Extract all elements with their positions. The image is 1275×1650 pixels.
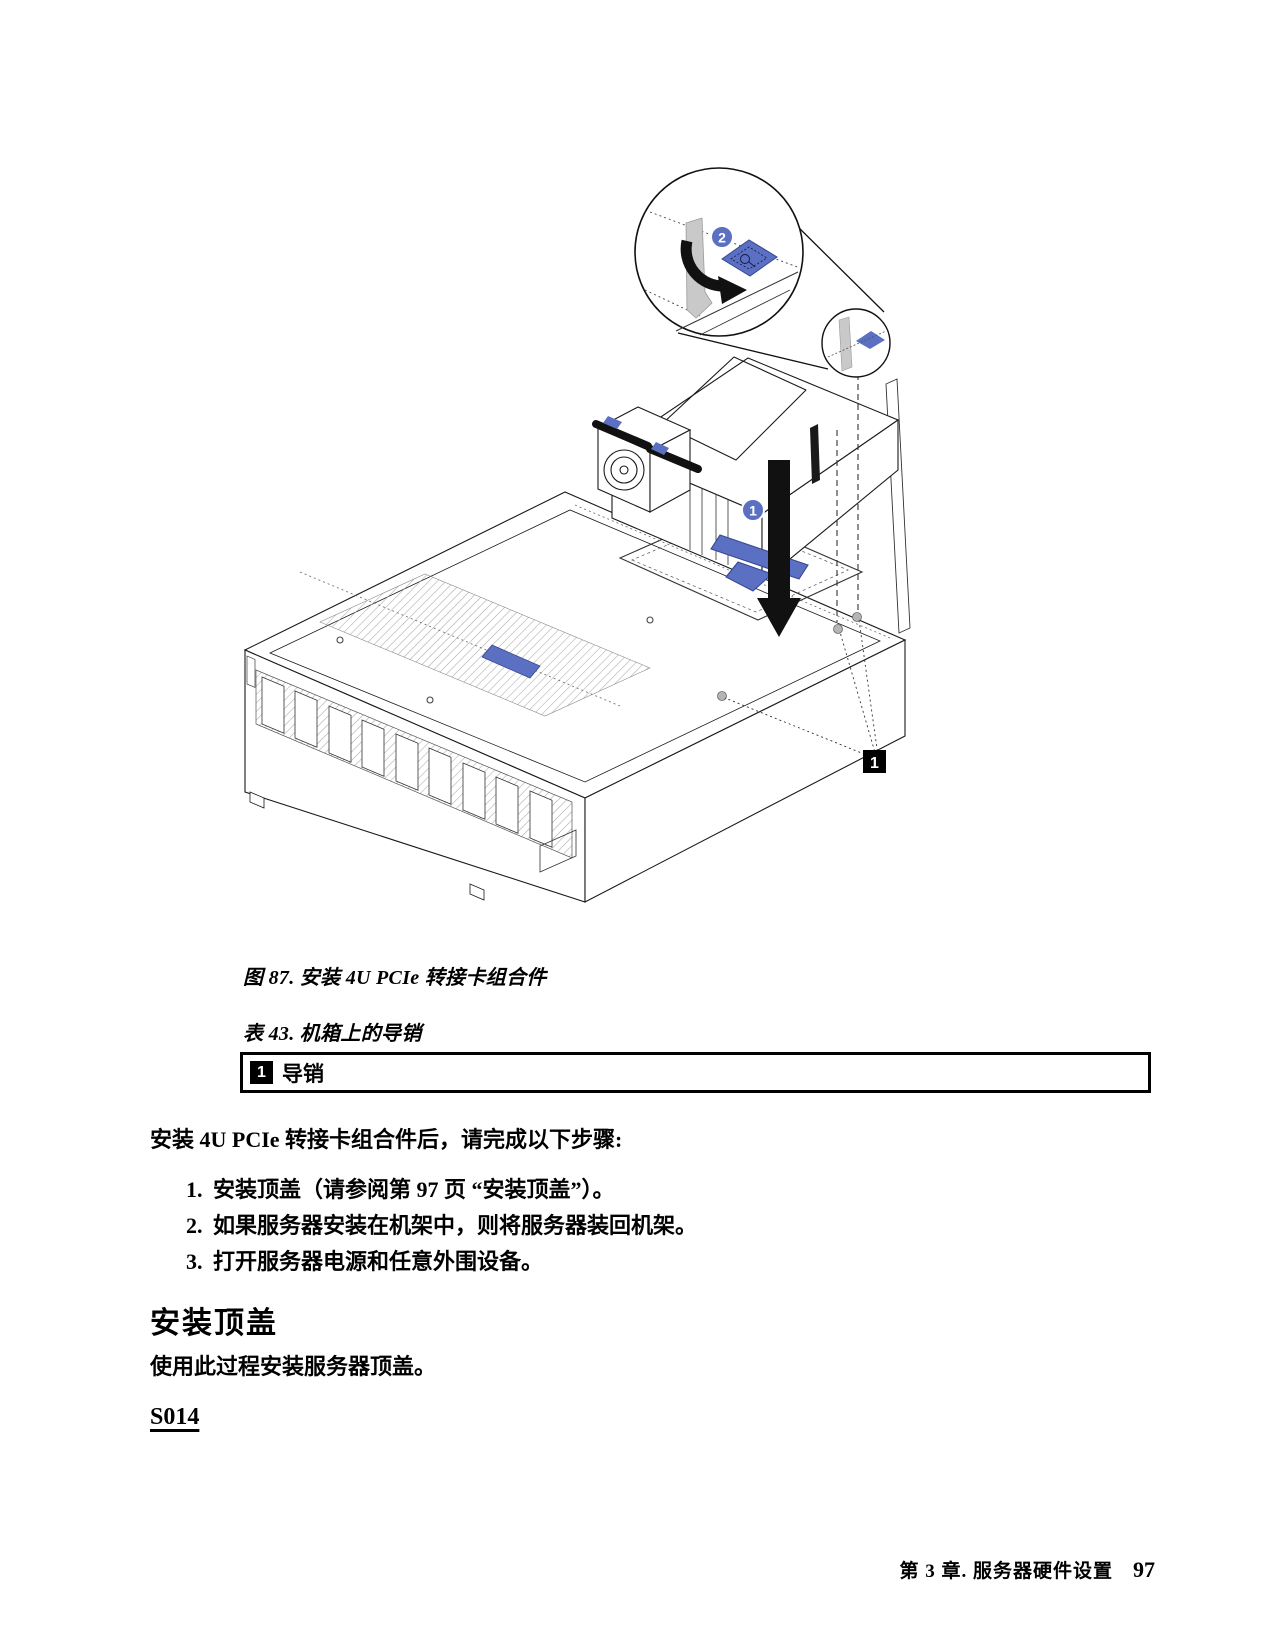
guide-pin <box>834 625 843 634</box>
page-footer: 第 3 章. 服务器硬件设置 97 <box>899 1556 1155 1583</box>
callout-2-text: 2 <box>718 230 726 246</box>
table-row-label: 导销 <box>282 1058 324 1088</box>
section-body: 使用此过程安装服务器顶盖。 <box>150 1349 436 1381</box>
step-number: 3. <box>186 1249 213 1274</box>
section-heading: 安装顶盖 <box>150 1298 278 1342</box>
step-number: 1. <box>186 1177 213 1202</box>
step-number: 2. <box>186 1213 213 1238</box>
guide-pin-table: 1 导销 <box>240 1052 1151 1093</box>
step-text: 安装顶盖（请参阅第 97 页 “安装顶盖”）。 <box>213 1177 615 1202</box>
guide-pin <box>853 613 862 622</box>
callout-1-text: 1 <box>749 503 757 519</box>
step-text: 如果服务器安装在机架中，则将服务器装回机架。 <box>213 1213 697 1238</box>
server-chassis <box>245 492 905 902</box>
step-text: 打开服务器电源和任意外围设备。 <box>213 1249 543 1274</box>
footer-page-number: 97 <box>1133 1557 1155 1583</box>
footer-chapter: 第 3 章. 服务器硬件设置 <box>899 1556 1113 1583</box>
magnifier-circle-large <box>635 168 803 336</box>
safety-statement-link[interactable]: S014 <box>150 1404 199 1431</box>
figure-87-illustration: 1 1 2 <box>230 130 930 920</box>
guide-pin <box>718 692 727 701</box>
table-caption: 表 43. 机箱上的导销 <box>243 1017 422 1046</box>
post-install-steps: 1. 安装顶盖（请参阅第 97 页 “安装顶盖”）。 2. 如果服务器安装在机架… <box>186 1177 697 1285</box>
magnifier-callout: 2 <box>635 168 890 377</box>
post-install-intro: 安装 4U PCIe 转接卡组合件后，请完成以下步骤: <box>150 1122 622 1154</box>
manual-page: 1 1 2 图 87. <box>0 0 1275 1650</box>
guide-pin-label-text: 1 <box>870 755 879 772</box>
list-item: 3. 打开服务器电源和任意外围设备。 <box>186 1249 697 1274</box>
table-row-badge: 1 <box>250 1061 273 1084</box>
list-item: 1. 安装顶盖（请参阅第 97 页 “安装顶盖”）。 <box>186 1177 697 1202</box>
figure-caption: 图 87. 安装 4U PCIe 转接卡组合件 <box>243 961 547 990</box>
list-item: 2. 如果服务器安装在机架中，则将服务器装回机架。 <box>186 1213 697 1238</box>
